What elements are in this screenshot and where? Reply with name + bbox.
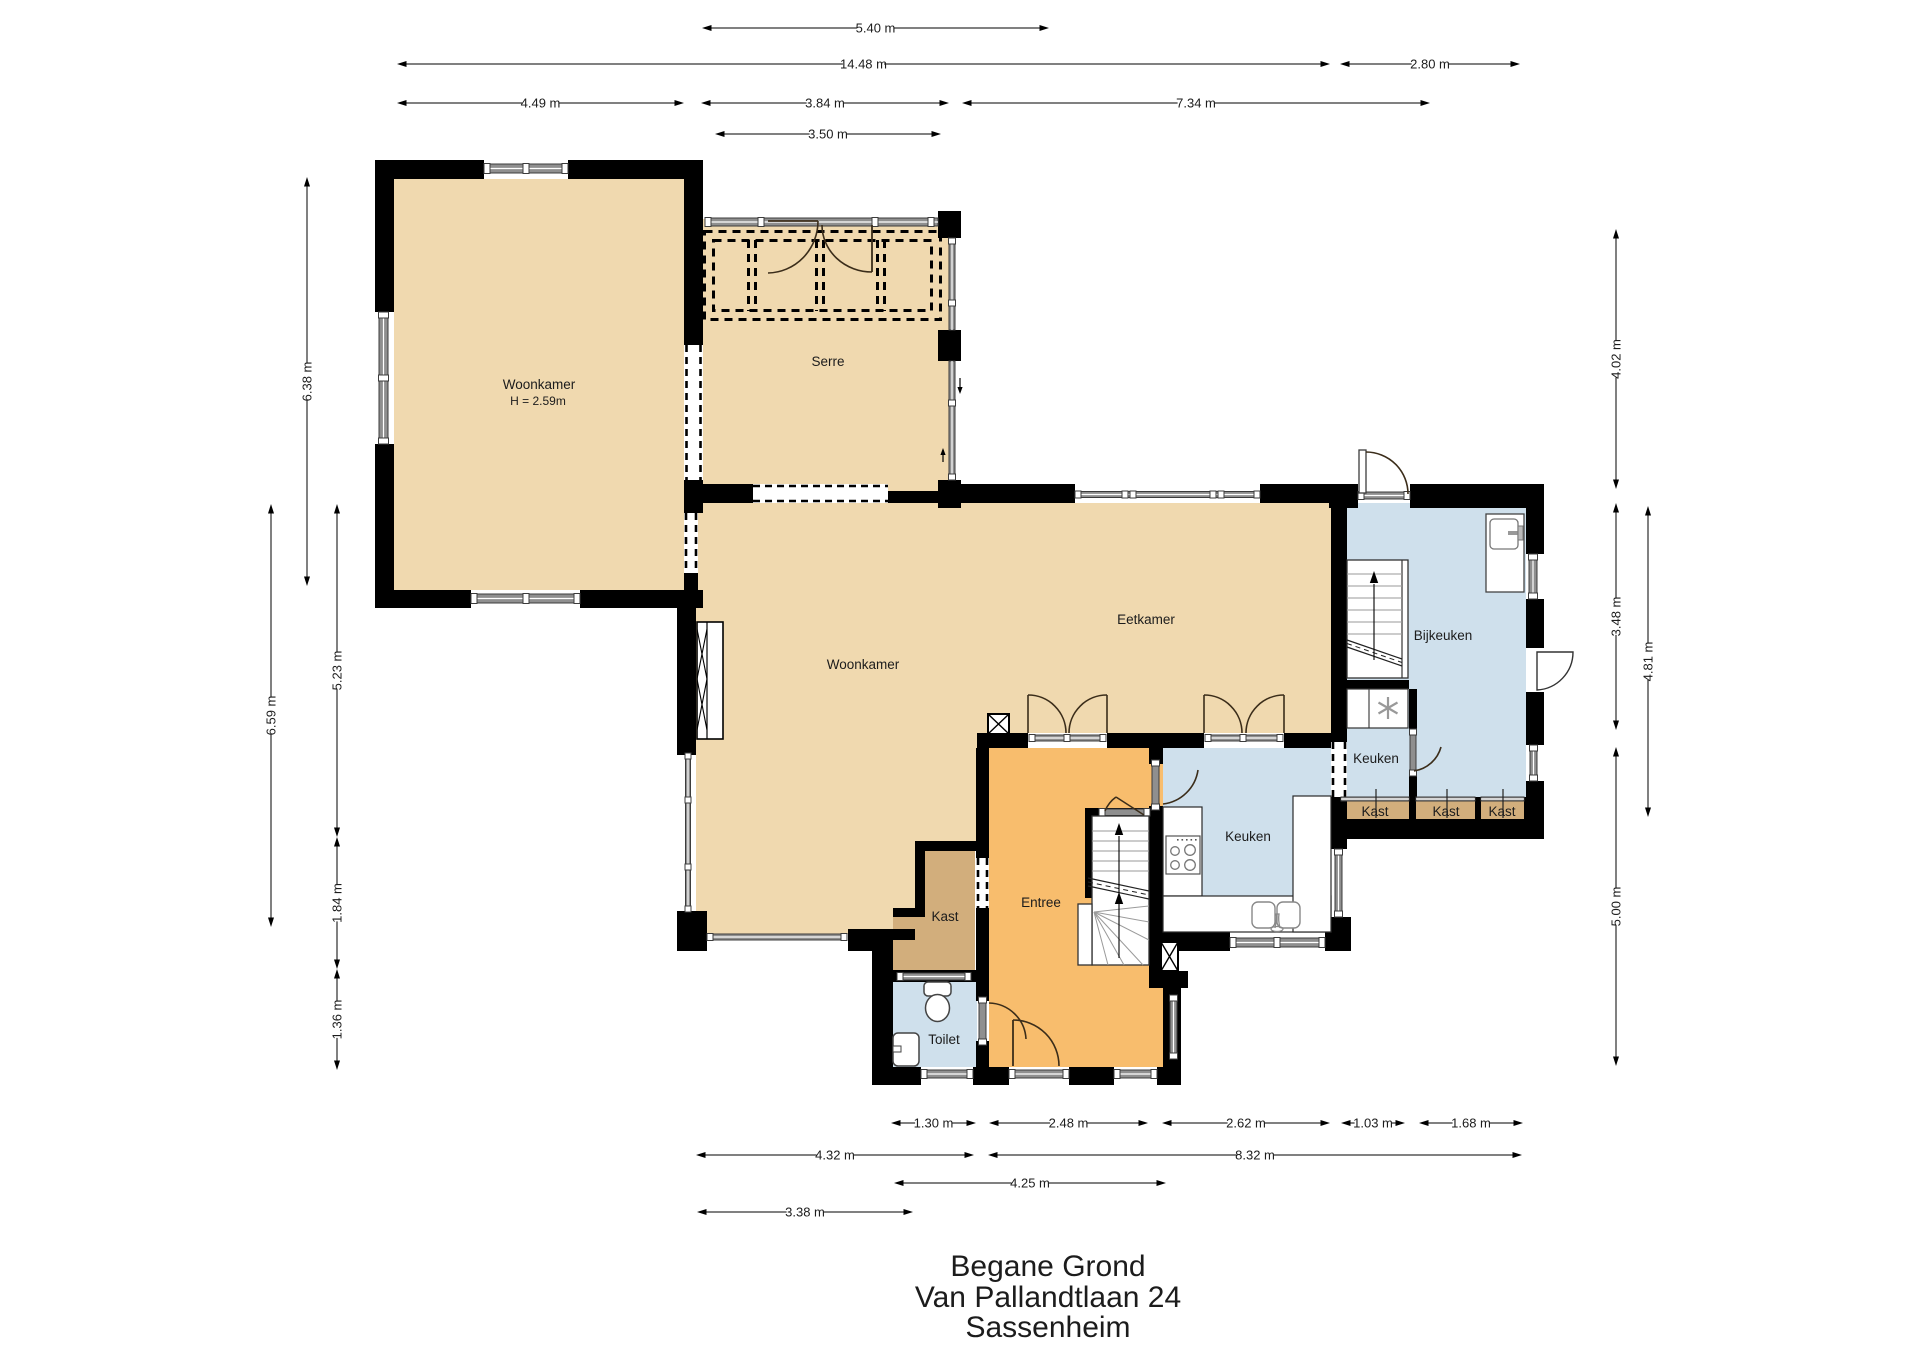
- svg-text:6.59 m: 6.59 m: [264, 696, 279, 736]
- svg-text:Kast: Kast: [1361, 804, 1388, 819]
- svg-text:8.32 m: 8.32 m: [1235, 1148, 1275, 1163]
- svg-text:Kast: Kast: [1488, 804, 1515, 819]
- svg-text:1.68 m: 1.68 m: [1451, 1116, 1491, 1131]
- svg-text:H = 2.59m: H = 2.59m: [510, 394, 566, 408]
- svg-text:Toilet: Toilet: [928, 1032, 960, 1047]
- svg-text:5.00 m: 5.00 m: [1609, 887, 1624, 927]
- svg-text:4.02 m: 4.02 m: [1609, 339, 1624, 379]
- svg-text:5.23 m: 5.23 m: [330, 651, 345, 691]
- svg-text:2.48 m: 2.48 m: [1049, 1116, 1089, 1131]
- svg-text:4.81 m: 4.81 m: [1641, 642, 1656, 682]
- svg-text:4.49 m: 4.49 m: [521, 96, 561, 111]
- svg-text:Keuken: Keuken: [1225, 829, 1271, 844]
- svg-text:Eetkamer: Eetkamer: [1117, 612, 1175, 627]
- svg-text:Woonkamer: Woonkamer: [503, 377, 576, 392]
- svg-text:1.03 m: 1.03 m: [1353, 1116, 1393, 1131]
- svg-text:Kast: Kast: [1432, 804, 1459, 819]
- svg-text:1.84 m: 1.84 m: [330, 883, 345, 923]
- svg-text:1.36 m: 1.36 m: [330, 1000, 345, 1040]
- svg-text:Entree: Entree: [1021, 895, 1061, 910]
- svg-text:Keuken: Keuken: [1353, 751, 1399, 766]
- svg-text:6.38 m: 6.38 m: [300, 362, 315, 402]
- svg-text:2.80 m: 2.80 m: [1410, 57, 1450, 72]
- svg-text:4.25 m: 4.25 m: [1010, 1176, 1050, 1191]
- svg-text:Begane Grond: Begane Grond: [950, 1250, 1145, 1283]
- svg-text:14.48 m: 14.48 m: [840, 57, 887, 72]
- svg-text:Van Pallandtlaan 24: Van Pallandtlaan 24: [915, 1281, 1181, 1314]
- svg-text:Kast: Kast: [931, 909, 958, 924]
- svg-text:Bijkeuken: Bijkeuken: [1414, 628, 1473, 643]
- svg-text:2.62 m: 2.62 m: [1226, 1116, 1266, 1131]
- svg-text:1.30 m: 1.30 m: [914, 1116, 954, 1131]
- svg-text:Woonkamer: Woonkamer: [827, 657, 900, 672]
- svg-text:3.38 m: 3.38 m: [785, 1205, 825, 1220]
- svg-text:4.32 m: 4.32 m: [815, 1148, 855, 1163]
- svg-text:5.40 m: 5.40 m: [856, 21, 896, 36]
- svg-text:3.84 m: 3.84 m: [805, 96, 845, 111]
- svg-text:Serre: Serre: [811, 354, 844, 369]
- svg-text:7.34 m: 7.34 m: [1176, 96, 1216, 111]
- svg-text:Sassenheim: Sassenheim: [965, 1311, 1130, 1344]
- svg-text:3.50 m: 3.50 m: [808, 127, 848, 142]
- svg-text:3.48 m: 3.48 m: [1609, 597, 1624, 637]
